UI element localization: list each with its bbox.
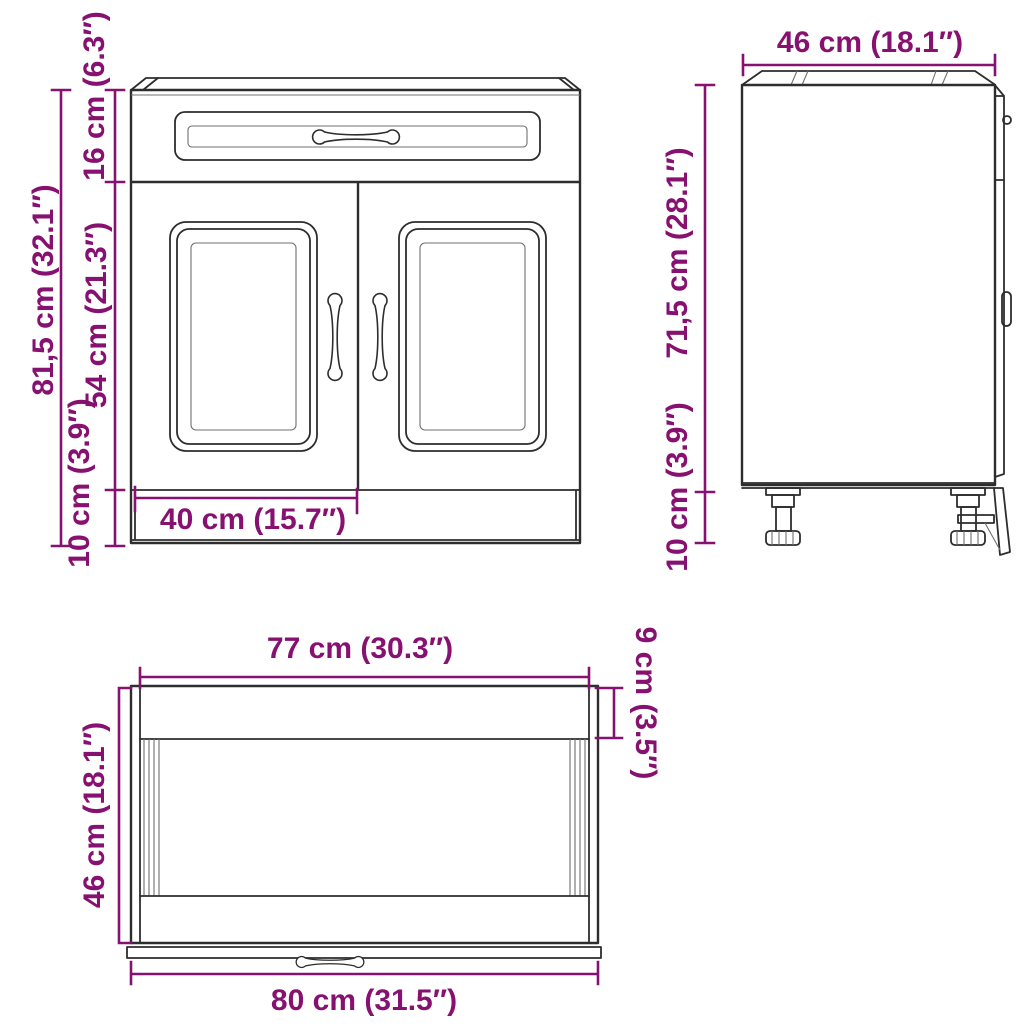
side-depth-label: 46 cm (18.1″) [777,28,963,58]
front-total-height-label: 81,5 cm (32.1″) [29,184,59,395]
bottom-view [119,668,622,984]
technical-drawing-canvas: 81,5 cm (32.1″) 16 cm (6.3″) 54 cm (21.3… [0,0,1024,1024]
bottom-inner-width-label: 77 cm (30.3″) [267,634,453,664]
cabinet-carcass-front [131,90,580,543]
front-view [52,78,580,546]
side-leg-height-label: 10 cm (3.9″) [663,402,693,571]
front-plinth-height-label: 10 cm (3.9″) [65,398,95,567]
side-view [696,55,1011,555]
drawer-handle [313,130,400,144]
plinth-board-side [994,488,1010,555]
drawing-linework [0,0,1024,1024]
front-door-height-label: 54 cm (21.3″) [82,222,112,408]
left-door-handle [328,294,342,381]
carcass-top-outline [131,686,598,943]
bottom-depth-label: 46 cm (18.1″) [80,722,110,908]
countertop-front [131,78,580,90]
right-door [373,222,546,451]
cabinet-foot-right [951,488,1010,555]
cabinet-foot-left [766,488,800,545]
bottom-back-strip-label: 9 cm (3.5″) [630,627,660,780]
bottom-total-width-label: 80 cm (31.5″) [271,986,457,1016]
countertop-side [742,71,995,85]
front-half-width-label: 40 cm (15.7″) [160,505,346,535]
right-door-handle [373,294,387,381]
bottom-dimension-lines [119,668,622,984]
countertop-edge-top [127,947,601,958]
left-door [170,222,342,451]
side-body-height-label: 71,5 cm (28.1″) [663,147,693,358]
cabinet-carcass-side [742,85,995,485]
front-top-section-label: 16 cm (6.3″) [80,11,110,180]
